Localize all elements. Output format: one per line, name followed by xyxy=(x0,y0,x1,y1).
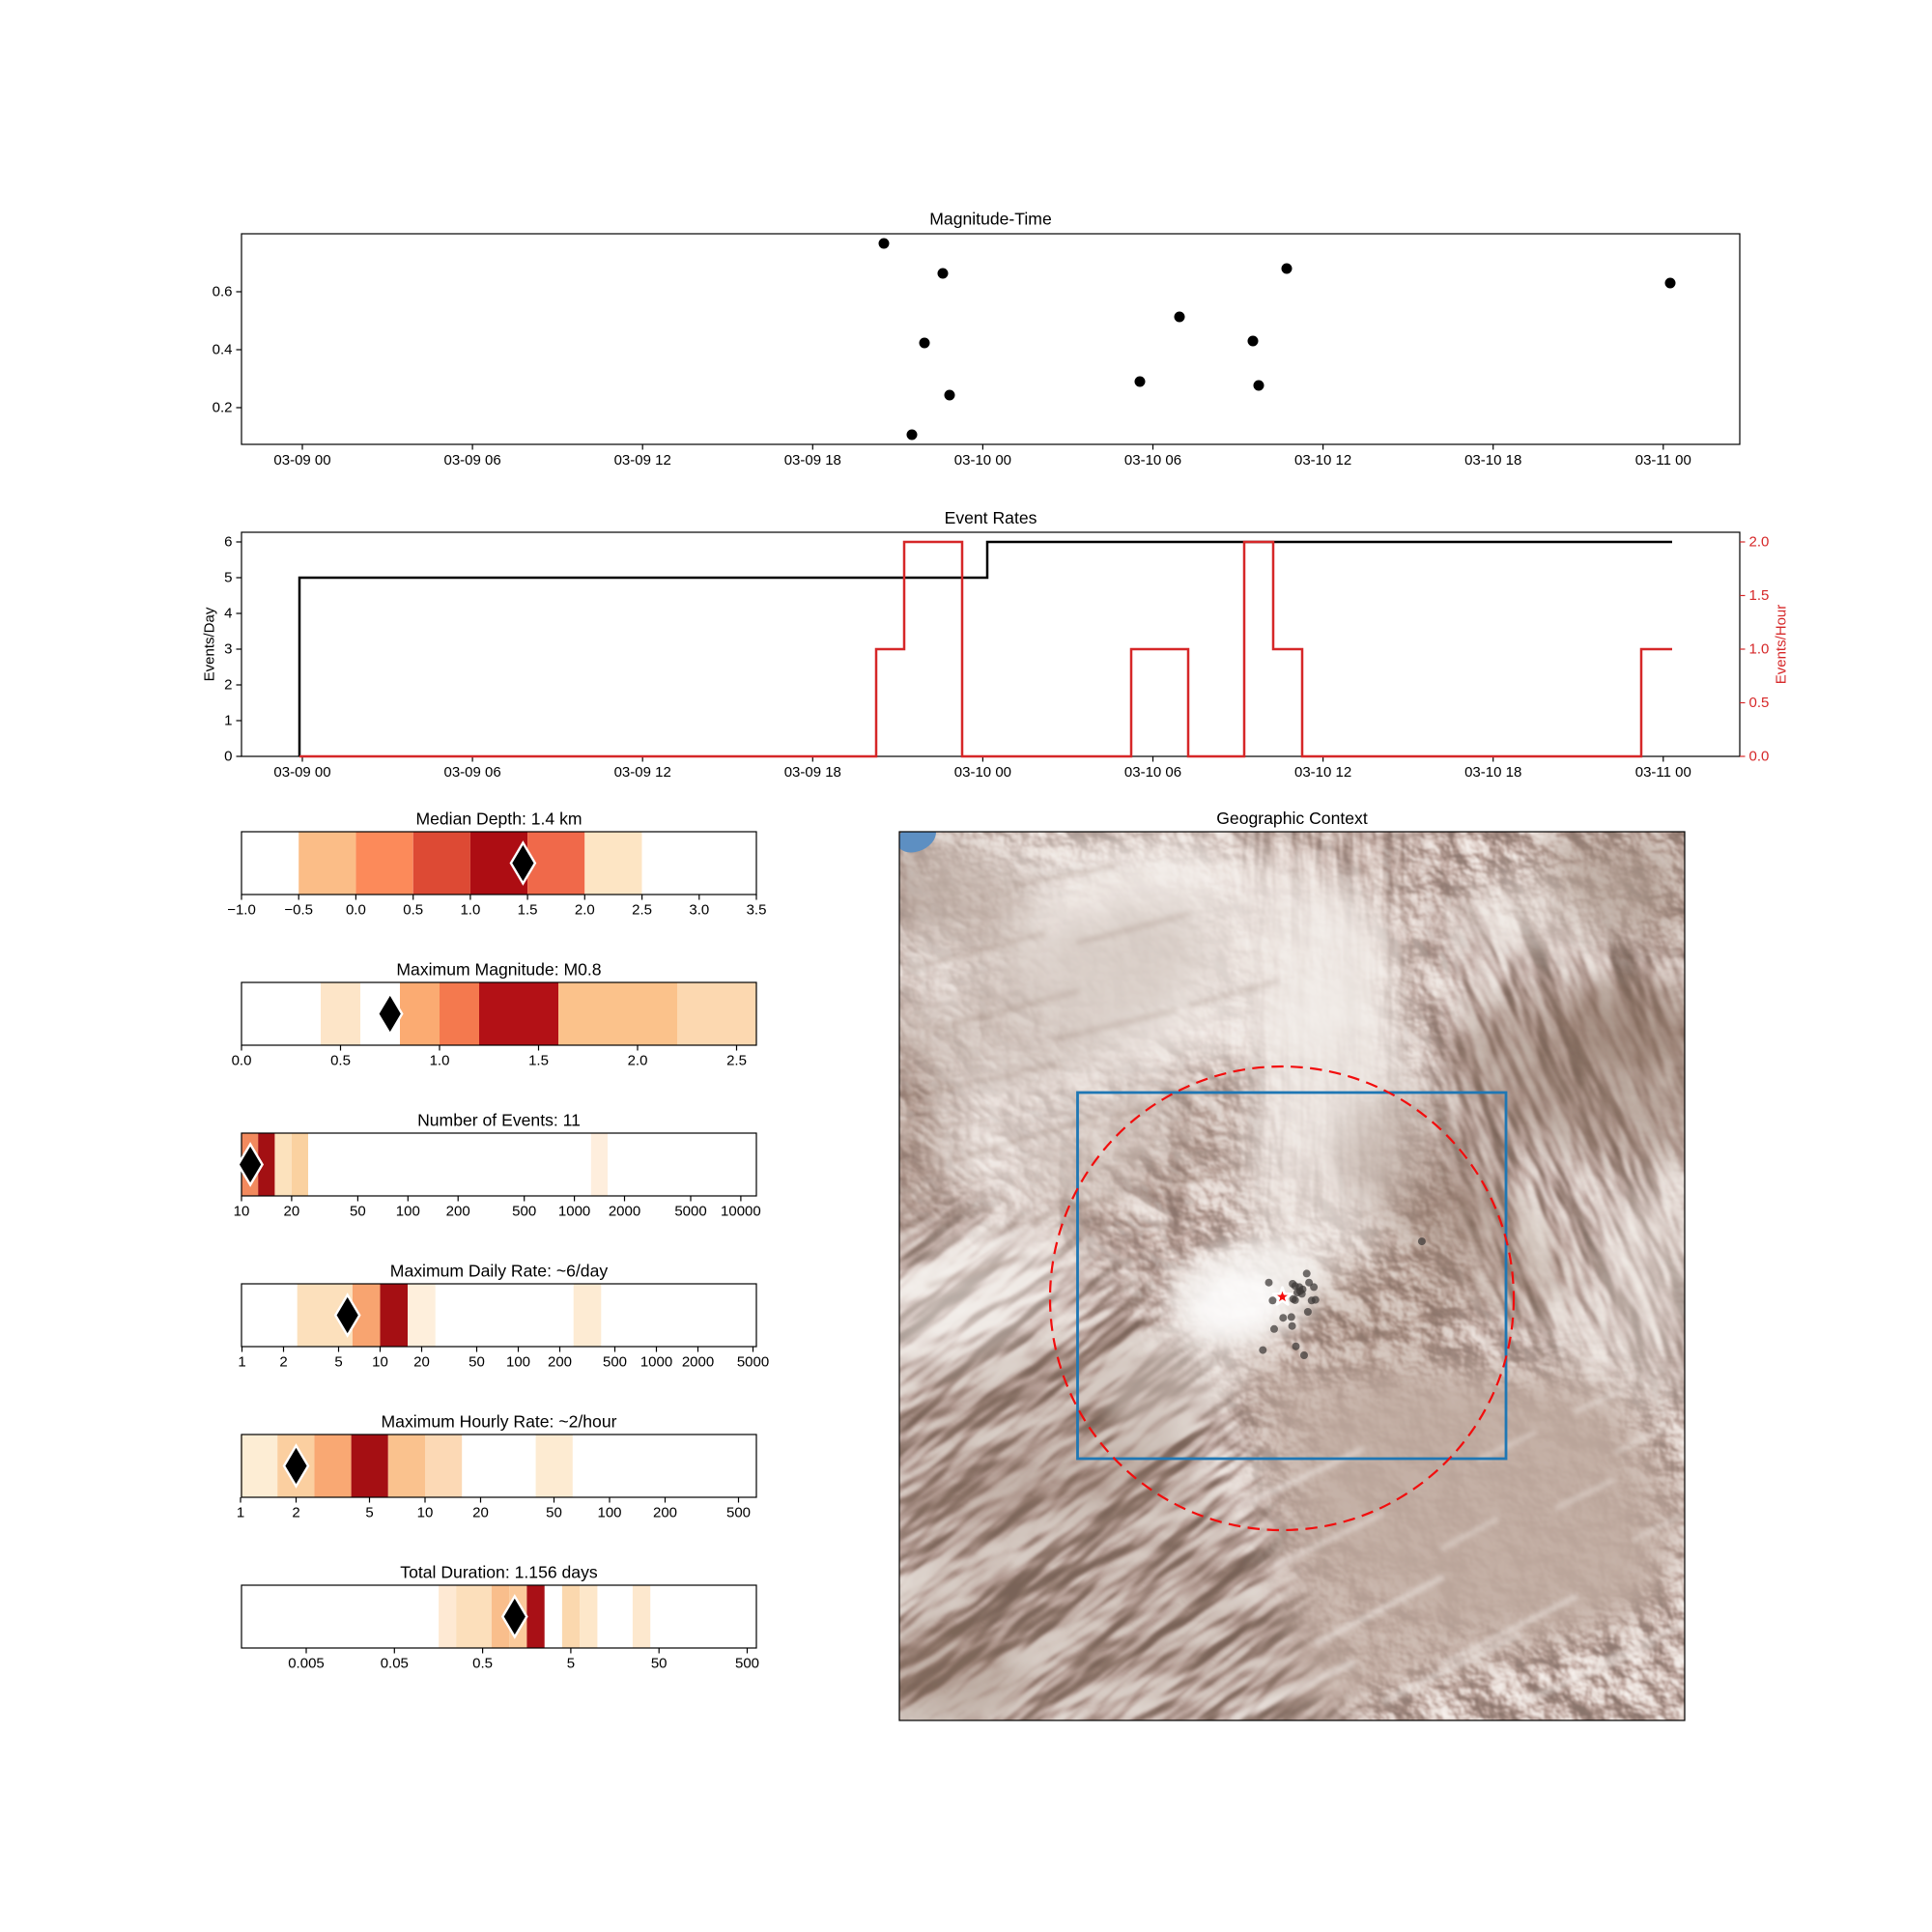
svg-text:20: 20 xyxy=(413,1354,430,1371)
svg-text:200: 200 xyxy=(653,1505,677,1521)
svg-text:Maximum Hourly Rate: ~2/hour: Maximum Hourly Rate: ~2/hour xyxy=(382,1412,617,1432)
svg-text:03-10 12: 03-10 12 xyxy=(1294,452,1351,469)
svg-text:100: 100 xyxy=(597,1505,621,1521)
svg-text:0.5: 0.5 xyxy=(403,902,423,919)
svg-text:03-09 18: 03-09 18 xyxy=(784,452,841,469)
svg-text:2000: 2000 xyxy=(609,1204,640,1220)
svg-text:10: 10 xyxy=(234,1204,250,1220)
svg-text:50: 50 xyxy=(546,1505,562,1521)
svg-text:100: 100 xyxy=(506,1354,530,1371)
svg-text:5: 5 xyxy=(567,1656,575,1672)
svg-text:03-11 00: 03-11 00 xyxy=(1635,764,1691,781)
svg-text:1.5: 1.5 xyxy=(518,902,538,919)
svg-text:Events/Day: Events/Day xyxy=(202,607,218,681)
svg-text:1: 1 xyxy=(224,713,232,729)
svg-text:−1.0: −1.0 xyxy=(227,902,256,919)
svg-text:50: 50 xyxy=(651,1656,668,1672)
svg-text:03-10 00: 03-10 00 xyxy=(954,764,1011,781)
svg-text:20: 20 xyxy=(284,1204,300,1220)
svg-text:100: 100 xyxy=(396,1204,420,1220)
svg-text:1: 1 xyxy=(238,1354,245,1371)
svg-text:200: 200 xyxy=(548,1354,572,1371)
svg-text:500: 500 xyxy=(735,1656,759,1672)
svg-text:−0.5: −0.5 xyxy=(284,902,313,919)
svg-text:Maximum Daily Rate: ~6/day: Maximum Daily Rate: ~6/day xyxy=(390,1262,609,1281)
svg-text:0.005: 0.005 xyxy=(288,1656,325,1672)
svg-text:Maximum Magnitude: M0.8: Maximum Magnitude: M0.8 xyxy=(396,960,601,980)
svg-text:Median Depth: 1.4 km: Median Depth: 1.4 km xyxy=(415,810,582,829)
svg-text:Number of Events: 11: Number of Events: 11 xyxy=(417,1111,581,1130)
svg-text:1.5: 1.5 xyxy=(1749,587,1770,604)
svg-text:03-09 18: 03-09 18 xyxy=(784,764,841,781)
svg-text:1.0: 1.0 xyxy=(460,902,480,919)
svg-text:3: 3 xyxy=(224,641,232,658)
svg-text:0.0: 0.0 xyxy=(346,902,366,919)
svg-text:10: 10 xyxy=(372,1354,388,1371)
svg-text:03-10 18: 03-10 18 xyxy=(1464,764,1521,781)
svg-text:3.5: 3.5 xyxy=(747,902,767,919)
svg-text:03-10 18: 03-10 18 xyxy=(1464,452,1521,469)
svg-text:4: 4 xyxy=(224,606,232,622)
svg-text:50: 50 xyxy=(469,1354,485,1371)
svg-text:2.0: 2.0 xyxy=(575,902,595,919)
svg-text:2.5: 2.5 xyxy=(632,902,652,919)
svg-text:6: 6 xyxy=(224,534,232,551)
svg-text:10000: 10000 xyxy=(721,1204,761,1220)
svg-text:Magnitude-Time: Magnitude-Time xyxy=(929,210,1051,229)
svg-text:0.5: 0.5 xyxy=(330,1053,351,1069)
svg-text:5: 5 xyxy=(334,1354,342,1371)
svg-text:1000: 1000 xyxy=(640,1354,672,1371)
svg-text:20: 20 xyxy=(472,1505,489,1521)
svg-text:03-10 00: 03-10 00 xyxy=(954,452,1011,469)
svg-text:10: 10 xyxy=(417,1505,434,1521)
svg-text:Event Rates: Event Rates xyxy=(945,508,1037,527)
svg-text:0.0: 0.0 xyxy=(232,1053,252,1069)
svg-text:0: 0 xyxy=(224,749,232,765)
svg-text:2.0: 2.0 xyxy=(628,1053,648,1069)
svg-text:1.5: 1.5 xyxy=(528,1053,549,1069)
svg-text:3.0: 3.0 xyxy=(689,902,709,919)
svg-text:03-09 06: 03-09 06 xyxy=(443,452,500,469)
svg-text:2: 2 xyxy=(279,1354,287,1371)
svg-text:0.5: 0.5 xyxy=(472,1656,493,1672)
svg-text:5000: 5000 xyxy=(737,1354,769,1371)
svg-text:0.05: 0.05 xyxy=(381,1656,409,1672)
svg-text:500: 500 xyxy=(603,1354,627,1371)
svg-text:200: 200 xyxy=(446,1204,470,1220)
svg-text:1.0: 1.0 xyxy=(430,1053,450,1069)
svg-text:0.5: 0.5 xyxy=(1749,695,1770,711)
svg-text:03-10 12: 03-10 12 xyxy=(1294,764,1351,781)
svg-text:2000: 2000 xyxy=(682,1354,714,1371)
svg-text:500: 500 xyxy=(726,1505,751,1521)
svg-text:03-09 12: 03-09 12 xyxy=(614,764,671,781)
svg-text:Events/Hour: Events/Hour xyxy=(1774,605,1790,685)
svg-text:5000: 5000 xyxy=(674,1204,706,1220)
svg-text:03-10 06: 03-10 06 xyxy=(1124,764,1181,781)
svg-text:0.6: 0.6 xyxy=(213,284,233,300)
svg-text:0.0: 0.0 xyxy=(1749,749,1770,765)
svg-text:2: 2 xyxy=(292,1505,299,1521)
svg-text:2.0: 2.0 xyxy=(1749,534,1770,551)
svg-text:500: 500 xyxy=(512,1204,536,1220)
svg-text:0.4: 0.4 xyxy=(213,342,233,358)
svg-text:50: 50 xyxy=(350,1204,366,1220)
svg-text:03-09 06: 03-09 06 xyxy=(443,764,500,781)
svg-text:2.5: 2.5 xyxy=(726,1053,747,1069)
svg-text:2: 2 xyxy=(224,677,232,694)
svg-text:5: 5 xyxy=(365,1505,373,1521)
svg-text:1000: 1000 xyxy=(558,1204,590,1220)
svg-text:03-09 00: 03-09 00 xyxy=(273,764,330,781)
svg-text:03-11 00: 03-11 00 xyxy=(1635,452,1691,469)
svg-text:1.0: 1.0 xyxy=(1749,641,1770,658)
svg-text:03-09 00: 03-09 00 xyxy=(273,452,330,469)
svg-text:1: 1 xyxy=(237,1505,244,1521)
svg-text:03-09 12: 03-09 12 xyxy=(614,452,671,469)
svg-text:03-10 06: 03-10 06 xyxy=(1124,452,1181,469)
svg-text:0.2: 0.2 xyxy=(213,400,233,416)
svg-text:Total Duration: 1.156 days: Total Duration: 1.156 days xyxy=(400,1563,598,1582)
svg-text:Geographic Context: Geographic Context xyxy=(1216,809,1368,828)
svg-text:5: 5 xyxy=(224,570,232,586)
